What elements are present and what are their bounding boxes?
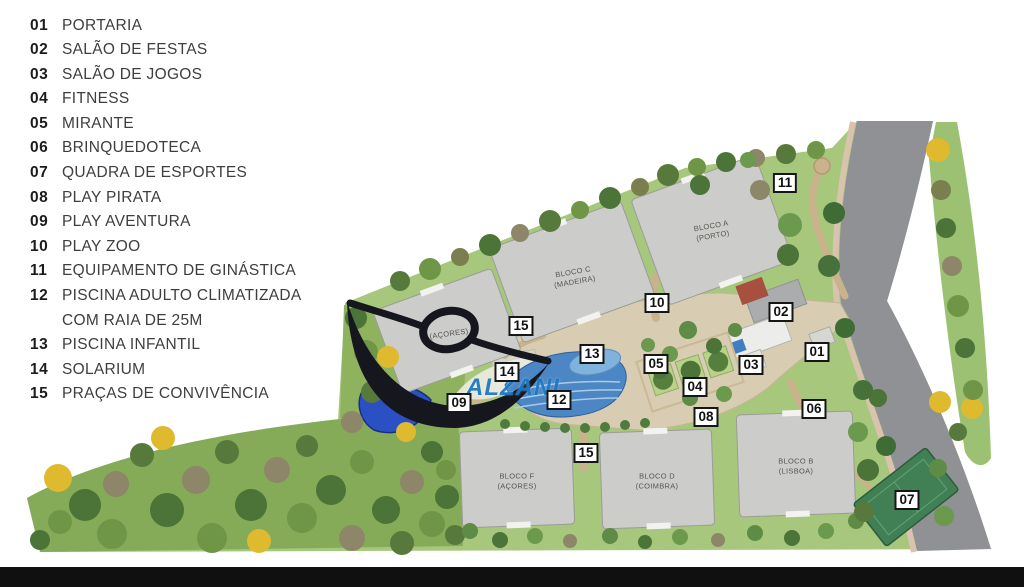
legend-label: PLAY PIRATA — [62, 189, 162, 207]
legend-label: QUADRA DE ESPORTES — [62, 164, 247, 182]
legend-item-11: 11EQUIPAMENTO DE GINÁSTICA — [30, 263, 320, 280]
legend-number: 12 — [30, 287, 62, 305]
legend-label: FITNESS — [62, 90, 130, 108]
legend-number: 02 — [30, 41, 62, 59]
legend-label: PLAY AVENTURA — [62, 213, 191, 231]
legend-label: SALÃO DE FESTAS — [62, 41, 207, 59]
legend-label: PRAÇAS DE CONVIVÊNCIA — [62, 385, 269, 403]
building-label-bloco-b: BLOCO B(LISBOA) — [778, 456, 813, 476]
map-marker-06-brinquedoteca: 06 — [801, 399, 826, 419]
legend-number: 06 — [30, 139, 62, 157]
legend-item-08: 08PLAY PIRATA — [30, 189, 320, 206]
map-marker-15-plaza-a: 15 — [508, 316, 533, 336]
legend-number: 14 — [30, 361, 62, 379]
legend-item-12-line2: COM RAIA DE 25M — [62, 312, 320, 329]
legend-label: PORTARIA — [62, 17, 142, 35]
map-marker-05-mirante: 05 — [643, 354, 668, 374]
building-label-bloco-d: BLOCO D(COIMBRA) — [636, 471, 679, 491]
legend-number: 11 — [30, 262, 62, 280]
map-marker-09-play-aventura: 09 — [446, 393, 471, 413]
map-marker-08-play-pirata: 08 — [693, 407, 718, 427]
legend-number: 10 — [30, 238, 62, 256]
legend: 01PORTARIA 02SALÃO DE FESTAS 03SALÃO DE … — [30, 17, 320, 411]
legend-number: 04 — [30, 90, 62, 108]
map-marker-11-gym: 11 — [773, 173, 797, 193]
legend-item-12: 12PISCINA ADULTO CLIMATIZADA — [30, 288, 320, 305]
legend-item-05: 05MIRANTE — [30, 115, 320, 132]
legend-label: PISCINA ADULTO CLIMATIZADA — [62, 287, 302, 305]
map-marker-04-fitness: 04 — [682, 377, 707, 397]
legend-item-02: 02SALÃO DE FESTAS — [30, 42, 320, 59]
map-marker-01-gatehouse: 01 — [804, 342, 829, 362]
legend-label: MIRANTE — [62, 115, 134, 133]
map-marker-14-solarium: 14 — [494, 362, 519, 382]
map-marker-07-sports-court: 07 — [894, 490, 919, 510]
legend-number: 07 — [30, 164, 62, 182]
legend-label: PLAY ZOO — [62, 238, 141, 256]
legend-item-14: 14SOLARIUM — [30, 361, 320, 378]
legend-item-04: 04FITNESS — [30, 91, 320, 108]
legend-label: SOLARIUM — [62, 361, 145, 379]
legend-label: SALÃO DE JOGOS — [62, 66, 202, 84]
map-marker-13-kids-pool: 13 — [579, 344, 604, 364]
legend-item-06: 06BRINQUEDOTECA — [30, 140, 320, 157]
legend-item-07: 07QUADRA DE ESPORTES — [30, 165, 320, 182]
map-marker-12-adult-pool: 12 — [546, 390, 571, 410]
legend-item-01: 01PORTARIA — [30, 17, 320, 34]
map-marker-10-play-zoo: 10 — [644, 293, 669, 313]
legend-item-13: 13PISCINA INFANTIL — [30, 337, 320, 354]
map-marker-03-games-hall: 03 — [738, 355, 763, 375]
legend-number: 09 — [30, 213, 62, 231]
legend-item-10: 10PLAY ZOO — [30, 238, 320, 255]
legend-label: BRINQUEDOTECA — [62, 139, 201, 157]
map-marker-15-plaza-b: 15 — [573, 443, 598, 463]
legend-number: 13 — [30, 336, 62, 354]
site-plan-page: 01PORTARIA 02SALÃO DE FESTAS 03SALÃO DE … — [0, 0, 1024, 587]
legend-number: 05 — [30, 115, 62, 133]
legend-number: 08 — [30, 189, 62, 207]
legend-number: 15 — [30, 385, 62, 403]
legend-item-03: 03SALÃO DE JOGOS — [30, 66, 320, 83]
gym-equipment-plaza — [814, 158, 830, 174]
map-marker-02-party-hall: 02 — [768, 302, 793, 322]
legend-item-15: 15PRAÇAS DE CONVIVÊNCIA — [30, 386, 320, 403]
legend-label: EQUIPAMENTO DE GINÁSTICA — [62, 262, 296, 280]
legend-item-09: 09PLAY AVENTURA — [30, 214, 320, 231]
building-label-bloco-f: BLOCO F(AÇORES) — [497, 471, 536, 491]
legend-label: PISCINA INFANTIL — [62, 336, 200, 354]
bottom-black-bar — [0, 567, 1024, 587]
legend-number: 03 — [30, 66, 62, 84]
legend-number: 01 — [30, 17, 62, 35]
